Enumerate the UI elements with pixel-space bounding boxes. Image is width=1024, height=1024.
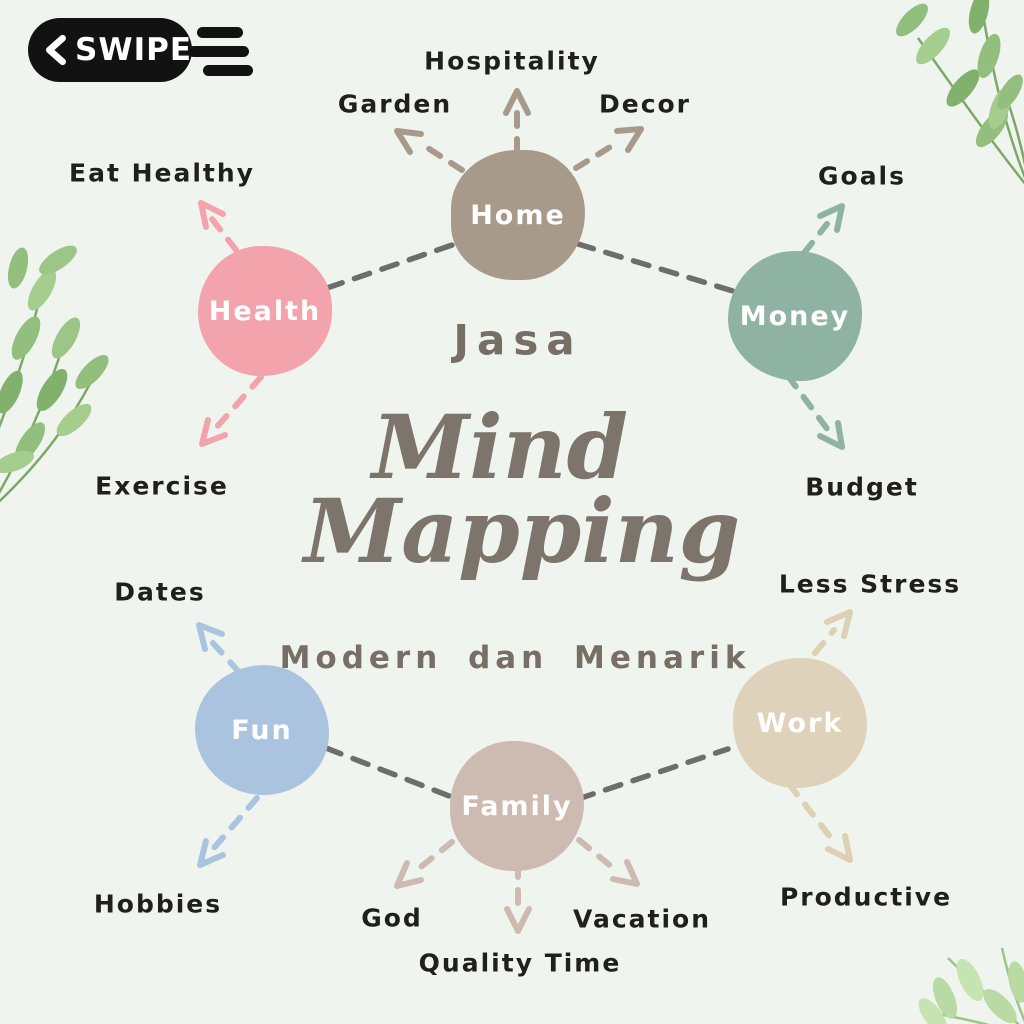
branch-label-less-stress: Less Stress: [779, 570, 961, 599]
branch-label-goals: Goals: [818, 162, 906, 191]
speed-line-icon: [197, 27, 243, 38]
node-money: Money: [728, 251, 862, 381]
chevron-left-icon: [42, 28, 67, 72]
node-family-label: Family: [461, 791, 572, 822]
branch-label-garden: Garden: [338, 90, 452, 119]
mind-map-poster: SWIPE Garden Hospitality Decor Eat Healt…: [0, 0, 1024, 1024]
branch-label-quality-time: Quality Time: [419, 949, 622, 978]
branch-label-vacation: Vacation: [573, 905, 711, 934]
title-kicker: Jasa: [453, 316, 582, 365]
branch-label-budget: Budget: [805, 473, 919, 502]
node-fun-label: Fun: [231, 715, 293, 746]
branch-label-hobbies: Hobbies: [94, 890, 222, 919]
node-health: Health: [198, 246, 332, 376]
node-health-label: Health: [209, 296, 322, 327]
connector-family-work: [578, 749, 728, 799]
title-script-line2: Mapping: [304, 479, 740, 583]
node-fun: Fun: [195, 665, 329, 795]
leaves-top-right: [891, 0, 1024, 190]
node-home-label: Home: [470, 200, 566, 231]
node-work-label: Work: [757, 708, 844, 739]
branch-label-decor: Decor: [599, 90, 691, 119]
node-money-label: Money: [740, 301, 851, 332]
branch-label-god: God: [361, 904, 423, 933]
node-home: Home: [451, 150, 585, 280]
swipe-badge[interactable]: SWIPE: [28, 18, 192, 82]
swipe-badge-label: SWIPE: [75, 32, 192, 68]
node-work: Work: [733, 658, 867, 788]
speed-line-icon: [203, 65, 253, 76]
branch-label-exercise: Exercise: [95, 472, 229, 501]
speed-line-icon: [188, 46, 249, 57]
title-subtitle: Modern dan Menarik: [280, 640, 751, 676]
branch-label-productive: Productive: [780, 883, 952, 912]
branch-label-hospitality: Hospitality: [424, 47, 600, 76]
connector-health-home: [327, 243, 458, 288]
branch-label-eat-healthy: Eat Healthy: [69, 159, 255, 188]
connector-home-money: [578, 244, 733, 291]
connector-fun-family: [326, 748, 457, 799]
branch-label-dates: Dates: [114, 578, 205, 607]
leaves-bottom-right: [913, 948, 1024, 1024]
